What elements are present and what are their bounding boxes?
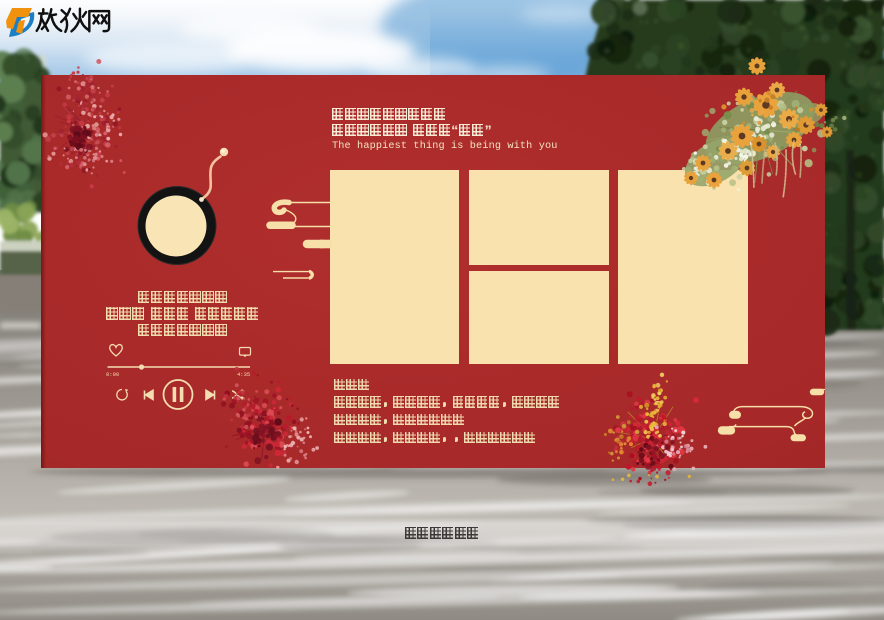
svg-text:4:35: 4:35: [237, 371, 250, 378]
svg-text:0:00: 0:00: [106, 371, 119, 378]
